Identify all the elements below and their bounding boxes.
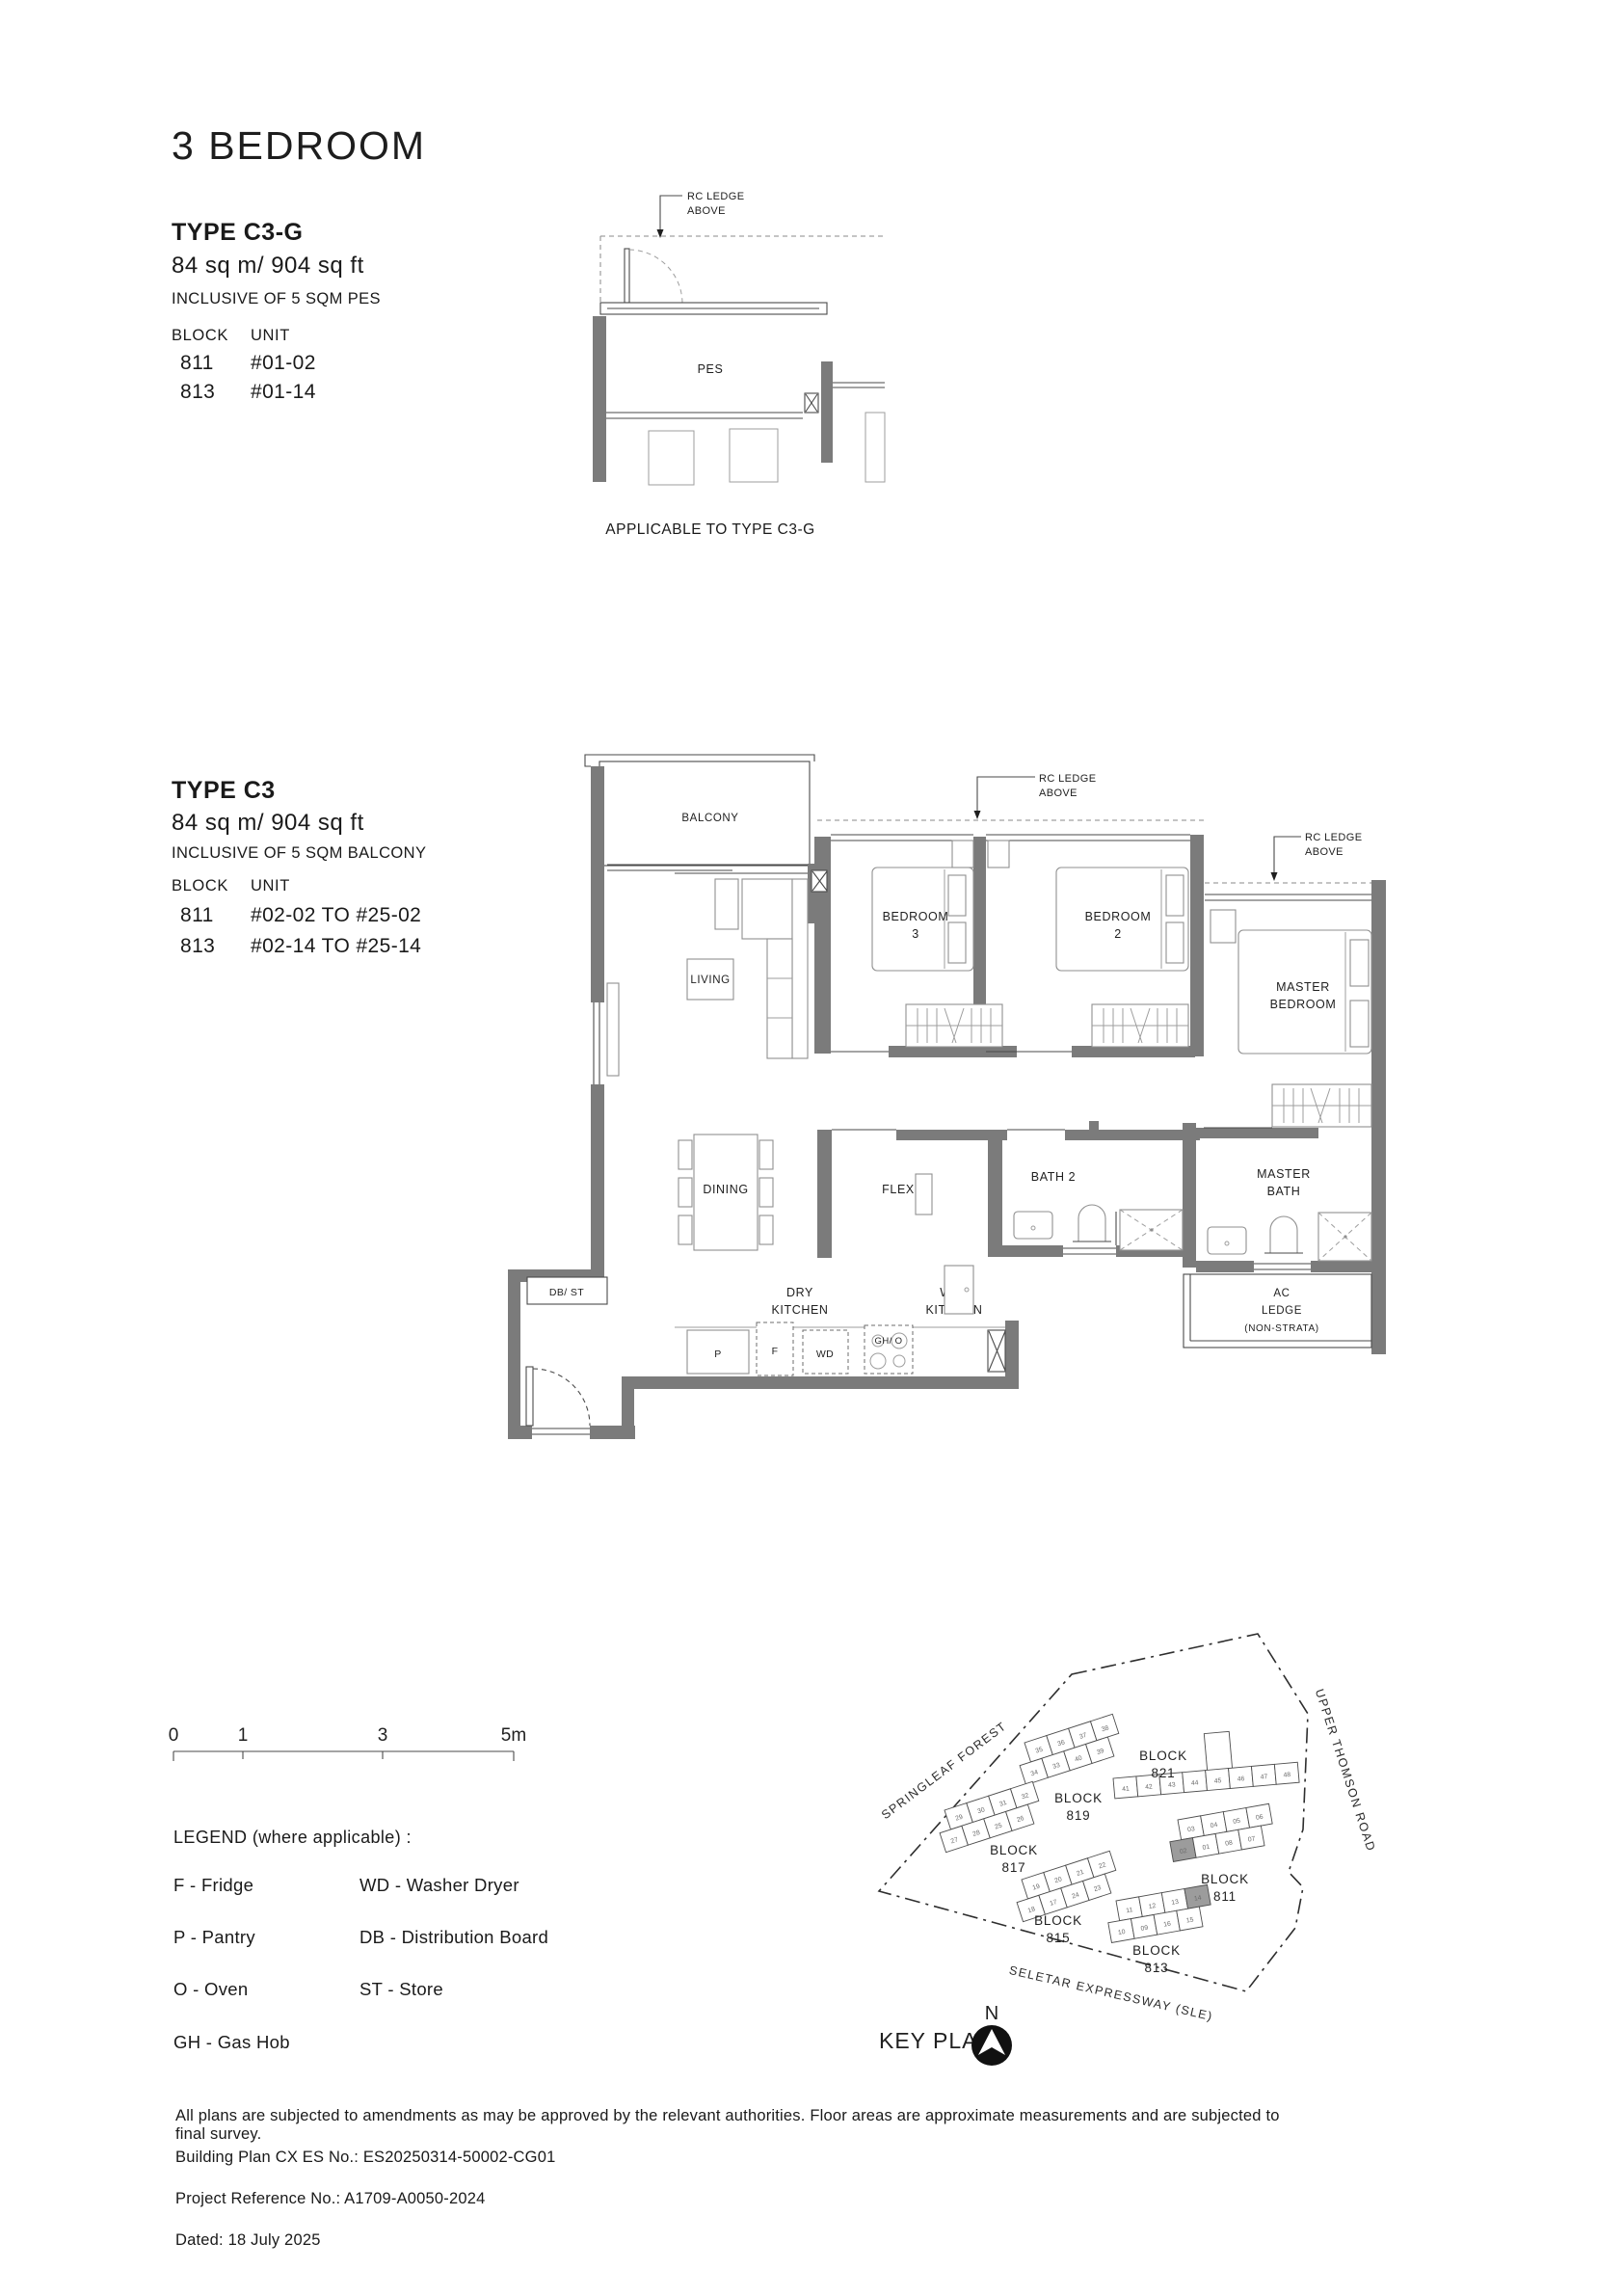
block-header: BLOCK <box>172 877 228 895</box>
north-compass-icon <box>971 2025 1012 2066</box>
svg-text:45: 45 <box>1214 1777 1222 1785</box>
svg-text:01: 01 <box>1202 1844 1211 1852</box>
block-817-label: BLOCK <box>990 1843 1038 1857</box>
flex-cabinet <box>916 1174 932 1215</box>
master-bedroom-label: MASTER <box>1276 980 1330 994</box>
scale-bar: 0 1 3 5m <box>159 1716 535 1774</box>
svg-text:07: 07 <box>1247 1835 1256 1843</box>
block-817-cluster: 29303132 27282526 <box>934 1781 1046 1852</box>
dry-kitchen-label: DRY <box>786 1286 813 1299</box>
svg-text:821: 821 <box>1152 1766 1176 1780</box>
svg-text:813: 813 <box>1145 1961 1169 1975</box>
svg-text:42: 42 <box>1145 1783 1153 1791</box>
toilet <box>1270 1216 1297 1253</box>
kitchen-bottom-wall <box>634 1376 1019 1389</box>
svg-text:BEDROOM: BEDROOM <box>1270 998 1337 1011</box>
pes-room-label: PES <box>698 362 724 376</box>
legend-item: ST - Store <box>359 1979 443 2000</box>
svg-text:14: 14 <box>1194 1895 1203 1903</box>
bath2-top-wall <box>1065 1130 1200 1140</box>
bath2-left-wall <box>988 1130 1002 1257</box>
footer-project-ref: Project Reference No.: A1709-A0050-2024 <box>175 2190 486 2208</box>
svg-text:2: 2 <box>1114 927 1122 941</box>
table-cell: 813 <box>180 935 215 958</box>
block-815-label: BLOCK <box>1034 1913 1082 1928</box>
ghost-furniture <box>649 431 694 485</box>
svg-text:KITCHEN: KITCHEN <box>771 1303 828 1317</box>
svg-text:15: 15 <box>1185 1916 1194 1924</box>
bath2-label: BATH 2 <box>1031 1170 1076 1184</box>
svg-text:05: 05 <box>1233 1818 1241 1826</box>
svg-text:815: 815 <box>1047 1931 1071 1945</box>
svg-text:BATH: BATH <box>1267 1185 1301 1198</box>
table-cell: #01-14 <box>251 381 316 404</box>
type-c3-inclusive: INCLUSIVE OF 5 SQM BALCONY <box>172 844 426 863</box>
chair <box>678 1140 692 1169</box>
scale-tick-3: 3 <box>378 1725 388 1746</box>
unit-header: UNIT <box>251 327 290 345</box>
pes-mini-plan: RC LEDGE ABOVE PES <box>554 183 896 545</box>
chair <box>678 1178 692 1207</box>
gas-hob-oven: GH/ O <box>865 1325 913 1374</box>
block-815-cluster: 19202122 18172423 <box>1011 1851 1123 1921</box>
svg-text:08: 08 <box>1225 1840 1234 1848</box>
block-813-cluster: 11121314 10091615 <box>1104 1884 1214 1942</box>
chair <box>759 1215 773 1244</box>
living-bed3-wall <box>814 837 831 1054</box>
pillow <box>948 875 966 916</box>
svg-text:10: 10 <box>1117 1929 1126 1936</box>
shower <box>1318 1213 1371 1261</box>
rc-ledge-label: RC LEDGE <box>1305 832 1362 843</box>
pillow <box>1166 922 1184 963</box>
svg-text:ABOVE: ABOVE <box>687 205 726 217</box>
coffee-table <box>715 879 738 929</box>
pillow <box>1166 875 1184 916</box>
block-819-label: BLOCK <box>1054 1791 1103 1805</box>
masterbath-top-wall <box>1196 1128 1318 1138</box>
pes-gate-swing <box>629 250 682 304</box>
shower <box>1120 1210 1183 1250</box>
north-label: N <box>985 2003 998 2024</box>
main-floor-plan: RC LEDGE ABOVE RC LEDGE ABOVE BALCONY <box>492 742 1402 1455</box>
floorplan-page: 3 BEDROOM TYPE C3-G 84 sq m/ 904 sq ft I… <box>0 0 1623 2296</box>
svg-text:06: 06 <box>1256 1814 1264 1822</box>
legend-item: F - Fridge <box>173 1875 253 1896</box>
scale-tick-5m: 5m <box>501 1725 526 1746</box>
svg-text:817: 817 <box>1002 1860 1026 1875</box>
pes-left-wall <box>593 316 606 482</box>
bed2-master-wall <box>1190 835 1204 1056</box>
table-cell: #02-14 TO #25-14 <box>251 935 421 958</box>
flex-left-wall <box>817 1130 832 1258</box>
legend-item: O - Oven <box>173 1979 248 2000</box>
rc-leader-line <box>660 196 682 229</box>
rc-ledge-label: RC LEDGE <box>687 191 744 202</box>
table-cell: 811 <box>180 352 214 375</box>
dining-label: DINING <box>703 1183 748 1196</box>
pillow <box>1350 940 1369 986</box>
svg-text:03: 03 <box>1187 1826 1196 1833</box>
legend-heading: LEGEND (where applicable) : <box>173 1828 412 1848</box>
svg-text:(NON-STRATA): (NON-STRATA) <box>1244 1323 1318 1334</box>
entry-door-leaf <box>526 1367 533 1426</box>
ac-ledge-label: AC <box>1273 1288 1290 1299</box>
pantry-label: P <box>714 1348 721 1360</box>
wardrobe <box>1092 1004 1188 1047</box>
entry-door-swing <box>533 1369 590 1426</box>
sofa <box>742 879 792 939</box>
block-813-label: BLOCK <box>1132 1943 1181 1958</box>
block-819-cluster: 35363738 34334039 <box>1014 1714 1126 1784</box>
svg-text:ABOVE: ABOVE <box>1305 846 1344 858</box>
svg-text:41: 41 <box>1122 1786 1130 1794</box>
svg-text:12: 12 <box>1148 1903 1157 1910</box>
table-cell: 811 <box>180 904 214 927</box>
right-outer-wall <box>1371 880 1386 1354</box>
bedside-shelf <box>1211 910 1236 943</box>
balcony-outer-step <box>585 755 814 766</box>
wardrobe <box>906 1004 1002 1047</box>
svg-text:GH/ O: GH/ O <box>875 1336 903 1347</box>
svg-text:04: 04 <box>1210 1822 1218 1829</box>
legend-item: GH - Gas Hob <box>173 2032 290 2053</box>
db-st-label: DB/ ST <box>549 1287 584 1298</box>
svg-text:48: 48 <box>1283 1772 1290 1779</box>
legend-item: WD - Washer Dryer <box>359 1875 519 1896</box>
svg-text:44: 44 <box>1191 1779 1199 1787</box>
block-header: BLOCK <box>172 327 228 345</box>
svg-text:09: 09 <box>1140 1925 1149 1933</box>
scale-tick-1: 1 <box>238 1725 249 1746</box>
bedside-shelf <box>988 841 1009 868</box>
pes-gate-leaf <box>625 249 629 303</box>
footer-date: Dated: 18 July 2025 <box>175 2231 321 2250</box>
svg-text:3: 3 <box>912 927 919 941</box>
baths-divider-wall <box>1183 1123 1196 1268</box>
sink <box>1208 1227 1246 1254</box>
footer-building-plan: Building Plan CX ES No.: ES20250314-5000… <box>175 2149 555 2167</box>
flex-label: FLEX <box>882 1183 915 1196</box>
bedroom3-label: BEDROOM <box>883 910 949 923</box>
svg-text:11: 11 <box>1126 1907 1133 1914</box>
washer-dryer-label: WD <box>816 1348 834 1360</box>
scale-tick-0: 0 <box>169 1725 179 1746</box>
table-cell: 813 <box>180 381 215 404</box>
legend-item: DB - Distribution Board <box>359 1927 548 1948</box>
svg-text:47: 47 <box>1260 1774 1267 1781</box>
svg-text:13: 13 <box>1171 1899 1180 1907</box>
svg-text:819: 819 <box>1067 1808 1091 1823</box>
toilet <box>1078 1205 1105 1241</box>
tv-console <box>607 983 619 1076</box>
road-seletar-expressway: SELETAR EXPRESSWAY (SLE) <box>1008 1963 1214 2023</box>
rc-arrowhead <box>657 229 664 238</box>
type-c3-name: TYPE C3 <box>172 777 276 805</box>
pillow <box>948 922 966 963</box>
unit-header: UNIT <box>251 877 290 895</box>
type-c3g-area: 84 sq m/ 904 sq ft <box>172 253 364 280</box>
chair <box>678 1215 692 1244</box>
block-811-cluster: 03040506 02010807 <box>1166 1803 1276 1861</box>
key-plan: SPRINGLEAF FOREST UPPER THOMSON ROAD SEL… <box>848 1600 1388 2072</box>
type-c3-area: 84 sq m/ 904 sq ft <box>172 810 364 837</box>
svg-text:43: 43 <box>1168 1781 1176 1789</box>
block-821-label: BLOCK <box>1139 1749 1187 1763</box>
masterbath-label: MASTER <box>1257 1167 1311 1181</box>
block-811-label: BLOCK <box>1201 1872 1249 1886</box>
fridge-label: F <box>772 1346 779 1357</box>
type-c3g-name: TYPE C3-G <box>172 219 303 247</box>
chair <box>759 1178 773 1207</box>
svg-text:16: 16 <box>1163 1921 1172 1929</box>
svg-text:LEDGE: LEDGE <box>1262 1305 1302 1317</box>
living-label: LIVING <box>690 974 730 986</box>
chair <box>759 1140 773 1169</box>
svg-text:02: 02 <box>1179 1848 1187 1855</box>
legend-item: P - Pantry <box>173 1927 255 1948</box>
pes-right-wall <box>821 361 833 463</box>
page-title: 3 BEDROOM <box>172 123 426 169</box>
svg-text:ABOVE: ABOVE <box>1039 788 1078 799</box>
bedroom2-label: BEDROOM <box>1085 910 1152 923</box>
wardrobe <box>1272 1084 1371 1127</box>
road-upper-thomson: UPPER THOMSON ROAD <box>1313 1688 1378 1854</box>
pillow <box>1350 1001 1369 1047</box>
table-cell: #01-02 <box>251 352 316 375</box>
footer-disclaimer: All plans are subjected to amendments as… <box>175 2107 1293 2144</box>
bedside-shelf <box>952 841 973 868</box>
svg-text:811: 811 <box>1213 1889 1237 1904</box>
svg-text:46: 46 <box>1237 1775 1245 1783</box>
table-cell: #02-02 TO #25-02 <box>251 904 421 927</box>
balcony-label: BALCONY <box>681 813 738 824</box>
sink <box>1014 1212 1052 1239</box>
pes-caption: APPLICABLE TO TYPE C3-G <box>540 521 881 539</box>
rc-ledge-label: RC LEDGE <box>1039 773 1096 785</box>
type-c3g-inclusive: INCLUSIVE OF 5 SQM PES <box>172 290 381 308</box>
